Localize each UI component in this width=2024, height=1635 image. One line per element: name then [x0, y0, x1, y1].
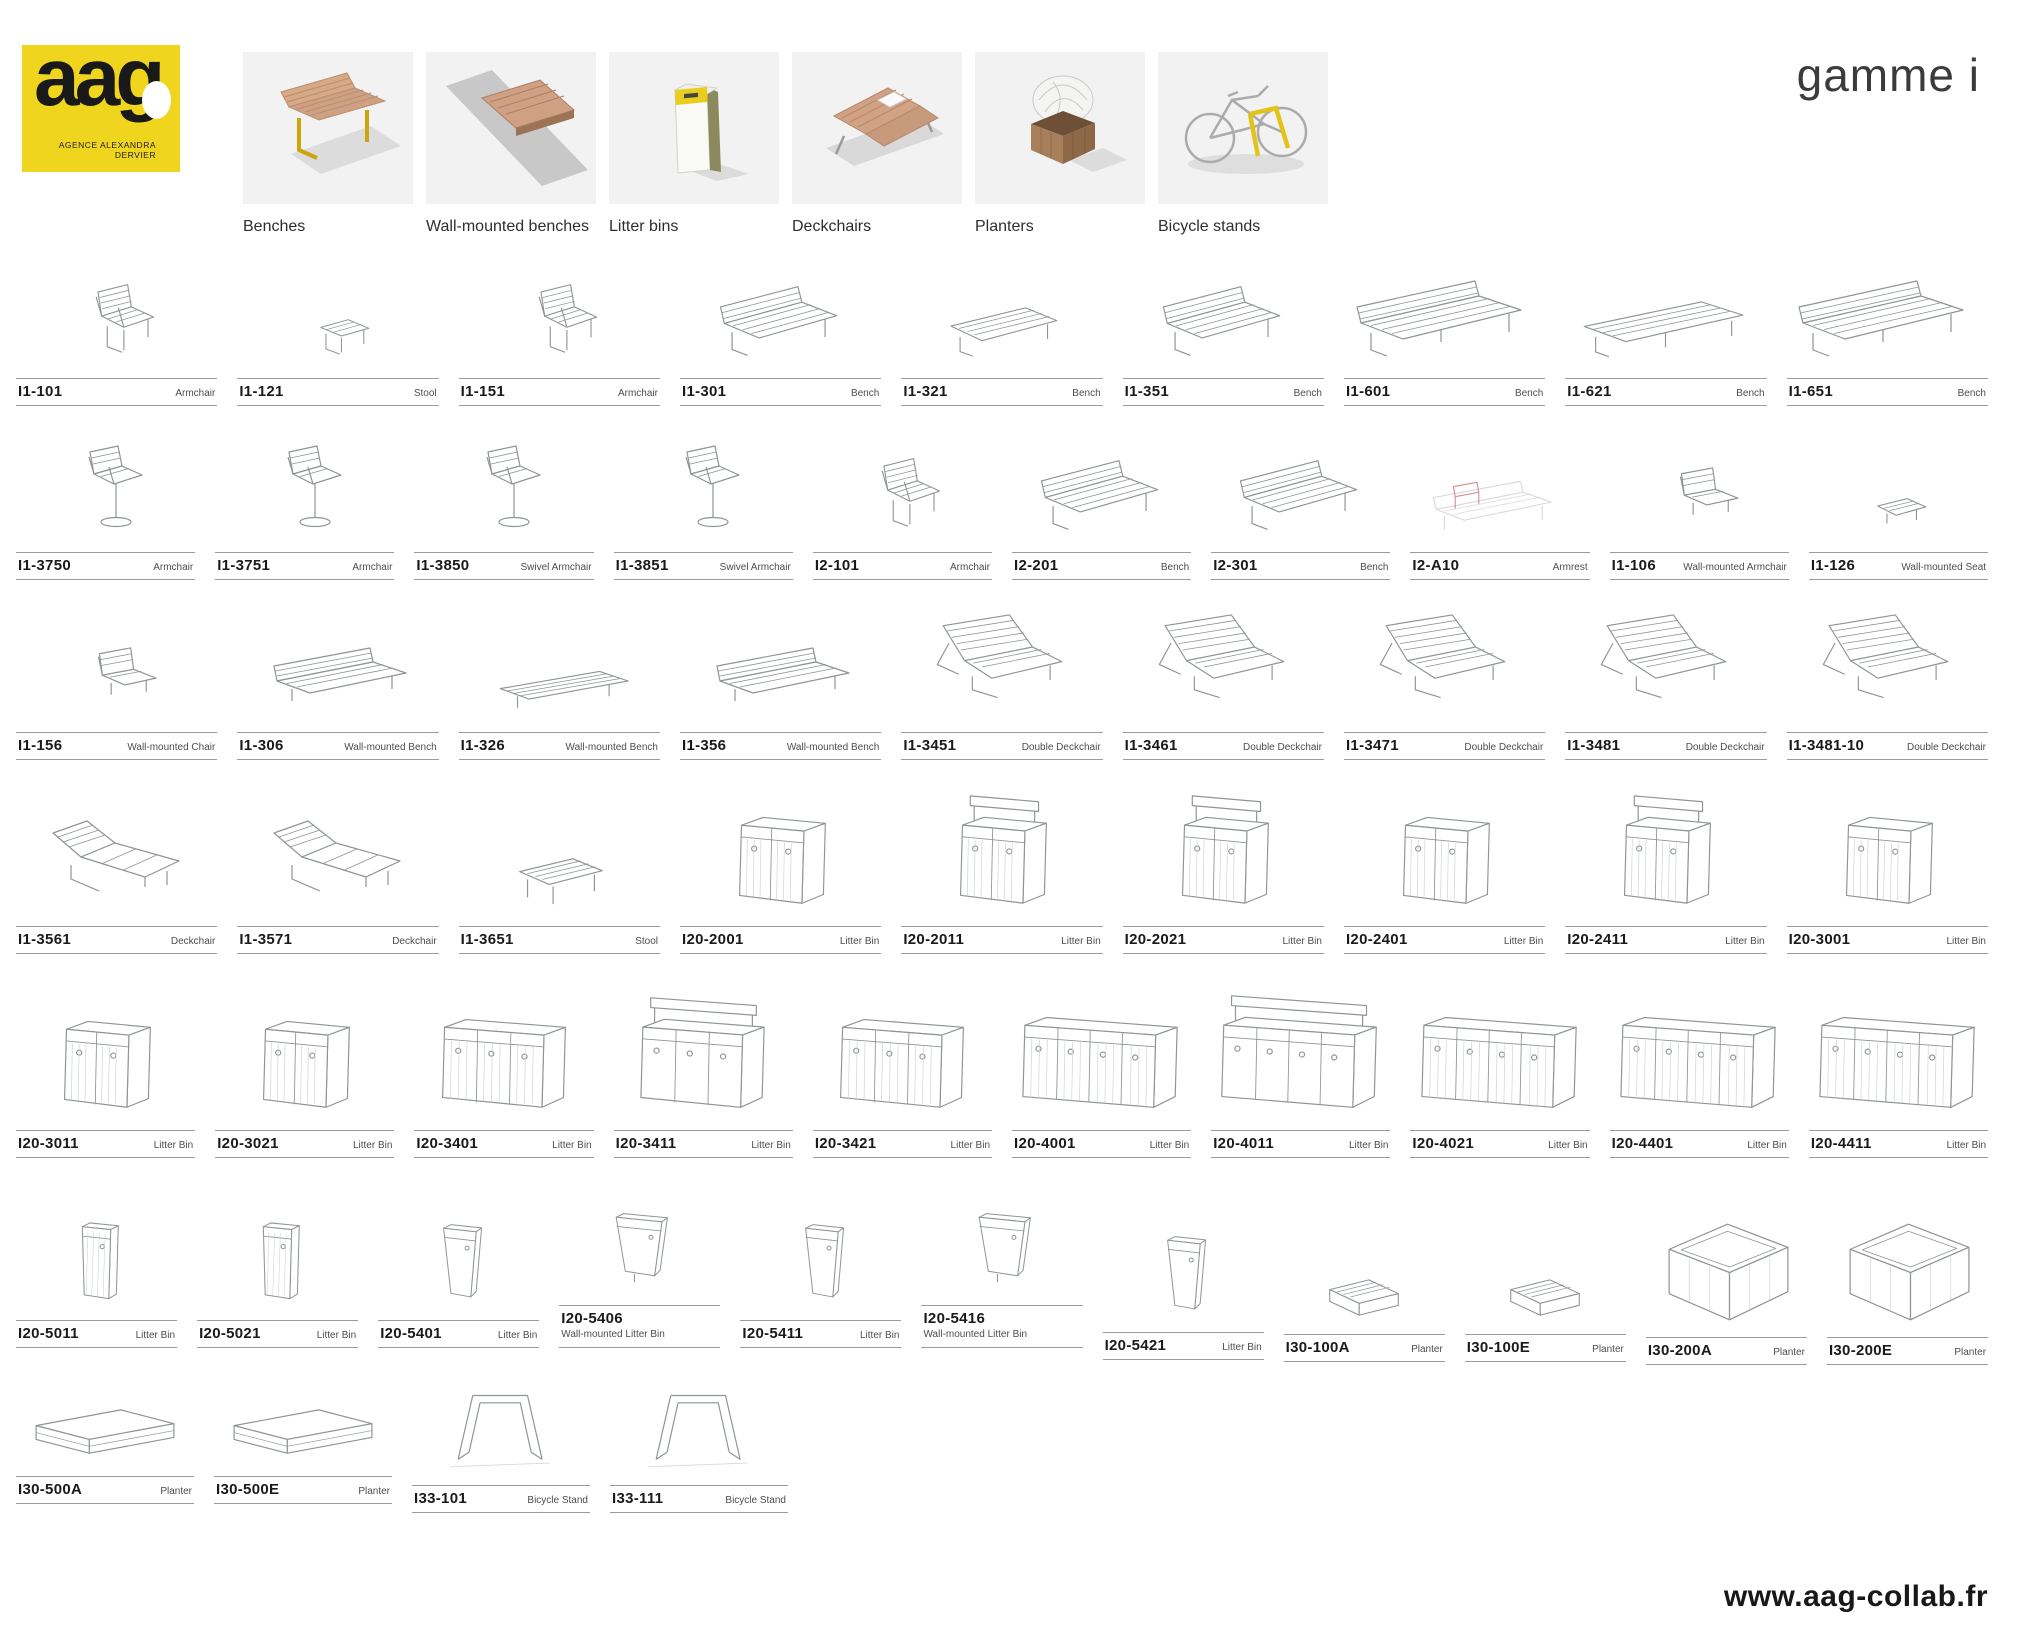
product-code: I20-4001 — [1014, 1135, 1076, 1152]
product-label: I20-2411Litter Bin — [1565, 926, 1766, 954]
product-sketch — [454, 442, 554, 547]
label-rule-bottom — [813, 579, 992, 580]
product-card: I20-3421Litter Bin — [813, 998, 1012, 1158]
product-sketch — [856, 454, 949, 547]
planter-sketch — [1651, 1211, 1802, 1327]
product-row: I1-156Wall-mounted ChairI1-306Wall-mount… — [16, 592, 2008, 760]
product-card: I1-301Bench — [680, 276, 901, 406]
label-rule-bottom — [1565, 953, 1766, 954]
product-sketch — [1829, 794, 1946, 921]
product-type: Litter Bin — [1055, 936, 1100, 947]
label-rule-bottom — [614, 579, 793, 580]
product-label: I1-621Bench — [1565, 378, 1766, 406]
litter-bin-sketch — [1386, 794, 1503, 916]
litter-bin-sketch — [1210, 988, 1391, 1120]
product-row: I1-3750ArmchairI1-3751ArmchairI1-3850Swi… — [16, 418, 2008, 580]
product-code: I1-3750 — [18, 557, 71, 574]
product-code: I2-101 — [815, 557, 859, 574]
product-card: I20-5416Wall-mounted Litter Bin — [921, 1199, 1102, 1348]
product-code: I30-500A — [18, 1481, 82, 1498]
product-code: I1-356 — [682, 737, 726, 754]
product-code: I1-156 — [18, 737, 62, 754]
product-label: I20-5011Litter Bin — [16, 1320, 177, 1348]
product-type: Litter Bin — [1741, 1140, 1786, 1151]
product-sketch — [56, 442, 156, 547]
label-rule-bottom — [921, 1347, 1082, 1348]
category-label: Deckchairs — [792, 218, 962, 236]
product-card: I1-356Wall-mounted Bench — [680, 642, 901, 760]
label-rule-bottom — [1123, 953, 1324, 954]
category-tile: Litter bins — [609, 52, 779, 236]
label-rule-bottom — [1012, 579, 1191, 580]
product-label: I20-5421Litter Bin — [1103, 1332, 1264, 1360]
product-card: I1-3651Stool — [459, 842, 680, 954]
product-code: I1-321 — [903, 383, 947, 400]
label-rule-bottom — [1103, 1359, 1264, 1360]
swivel-armchair-sketch — [653, 442, 753, 542]
litter-bin-sketch — [47, 998, 164, 1120]
label-rule-bottom — [1787, 759, 1988, 760]
litter-bin-sketch — [1607, 784, 1724, 916]
product-sketch — [1155, 1220, 1211, 1327]
product-label: I1-306Wall-mounted Bench — [237, 732, 438, 760]
product-type: Bicycle Stand — [521, 1495, 588, 1506]
label-rule-bottom — [1809, 579, 1988, 580]
product-label: I1-3850Swivel Armchair — [414, 552, 593, 580]
product-sketch — [827, 998, 978, 1125]
product-code: I1-3571 — [239, 931, 292, 948]
product-sketch — [1578, 610, 1753, 727]
product-label: I20-3001Litter Bin — [1787, 926, 1988, 954]
product-sketch — [1210, 988, 1391, 1125]
product-code: I1-151 — [461, 383, 505, 400]
product-code: I30-500E — [216, 1481, 279, 1498]
product-card: I20-4011Litter Bin — [1211, 988, 1410, 1158]
bench-sketch — [1345, 273, 1545, 368]
product-type: Litter Bin — [745, 1140, 790, 1151]
product-code: I20-5416 — [923, 1310, 985, 1327]
product-label: I20-5021Litter Bin — [197, 1320, 358, 1348]
product-card: I1-126Wall-mounted Seat — [1809, 482, 2008, 580]
product-type: Planter — [352, 1486, 390, 1497]
product-type: Armchair — [944, 562, 990, 573]
product-type: Litter Bin — [347, 1140, 392, 1151]
product-label: I20-5401Litter Bin — [378, 1320, 539, 1348]
product-label: I1-106Wall-mounted Armchair — [1610, 552, 1789, 580]
category-tiles: BenchesWall-mounted benchesLitter binsDe… — [243, 52, 1328, 236]
product-row: I20-5011Litter BinI20-5021Litter BinI20-… — [16, 1152, 2008, 1348]
product-code: I1-121 — [239, 383, 283, 400]
product-card: I30-100APlanter — [1284, 1270, 1465, 1362]
product-type: Double Deckchair — [1016, 742, 1101, 753]
product-type: Litter Bin — [1719, 936, 1764, 947]
product-sketch — [968, 1199, 1037, 1300]
product-label: I1-3451Double Deckchair — [901, 732, 1102, 760]
product-sketch — [1651, 1211, 1802, 1332]
category-label: Litter bins — [609, 218, 779, 236]
litter-bin-sketch — [1609, 998, 1790, 1120]
product-code: I1-3651 — [461, 931, 514, 948]
logo-tagline: AGENCE ALEXANDRA DERVIER — [56, 140, 156, 160]
double-deckchair-sketch — [1800, 610, 1975, 722]
product-card: I1-3561Deckchair — [16, 811, 237, 954]
product-sketch — [647, 1379, 752, 1480]
litter-bin-sketch — [1165, 784, 1282, 916]
product-label: I1-321Bench — [901, 378, 1102, 406]
product-card: I1-151Armchair — [459, 280, 680, 406]
label-rule-bottom — [1123, 405, 1324, 406]
product-type: Litter Bin — [1941, 1140, 1986, 1151]
product-label: I1-301Bench — [680, 378, 881, 406]
label-rule-bottom — [414, 579, 593, 580]
product-card: I1-3750Armchair — [16, 442, 215, 580]
label-rule-bottom — [1565, 759, 1766, 760]
wall-mounted-chair-sketch — [68, 644, 166, 722]
label-rule-bottom — [1344, 953, 1545, 954]
product-code: I20-3421 — [815, 1135, 877, 1152]
product-code: I1-106 — [1612, 557, 1656, 574]
bench-sketch — [1223, 450, 1378, 542]
product-sketch — [1571, 283, 1760, 373]
product-card: I20-2011Litter Bin — [901, 784, 1122, 954]
litter-bin-sketch — [1410, 998, 1591, 1120]
product-sketch — [793, 1208, 849, 1315]
product-code: I20-3001 — [1789, 931, 1851, 948]
product-sketch — [1318, 1270, 1411, 1329]
product-code: I30-200E — [1829, 1342, 1892, 1359]
label-rule-bottom — [16, 1347, 177, 1348]
product-label: I1-3571Deckchair — [237, 926, 438, 954]
product-code: I33-101 — [414, 1490, 467, 1507]
product-card: I2-201Bench — [1012, 450, 1211, 580]
product-type: Wall-mounted Bench — [781, 742, 879, 753]
product-card: I1-651Bench — [1787, 273, 2008, 406]
product-card: I2-101Armchair — [813, 454, 1012, 580]
website-link[interactable]: www.aag-collab.fr — [1724, 1580, 1988, 1614]
product-card: I30-500APlanter — [16, 1402, 214, 1504]
product-type: Wall-mounted Armchair — [1677, 562, 1787, 573]
product-code: I1-3481-10 — [1789, 737, 1865, 754]
product-type: Planter — [1948, 1347, 1986, 1358]
product-code: I1-3461 — [1125, 737, 1178, 754]
label-rule-bottom — [237, 953, 438, 954]
product-code: I20-5021 — [199, 1325, 261, 1342]
label-rule-bottom — [901, 405, 1102, 406]
product-card: I33-111Bicycle Stand — [610, 1379, 808, 1513]
product-code: I20-5011 — [18, 1325, 79, 1342]
product-code: I20-2401 — [1346, 931, 1408, 948]
product-card: I1-101Armchair — [16, 280, 237, 406]
product-label: I20-5411Litter Bin — [740, 1320, 901, 1348]
product-label: I2-201Bench — [1012, 552, 1191, 580]
product-type: Bench — [1288, 388, 1322, 399]
product-sketch — [1136, 610, 1311, 727]
bench-thumbnail-icon — [243, 52, 413, 204]
category-label: Benches — [243, 218, 413, 236]
product-sketch — [68, 644, 166, 727]
product-type: Double Deckchair — [1458, 742, 1543, 753]
product-card: I1-156Wall-mounted Chair — [16, 644, 237, 760]
product-type: Litter Bin — [945, 1140, 990, 1151]
litter-bin-sketch — [722, 794, 839, 916]
category-tile-image — [243, 52, 413, 204]
product-label: I30-200APlanter — [1646, 1337, 1807, 1365]
catalog-page: { "meta": { "brand_yellow": "#EFD51E", "… — [0, 0, 2024, 1635]
product-sketch — [1800, 610, 1975, 727]
product-code: I1-326 — [461, 737, 505, 754]
product-label: I1-3851Swivel Armchair — [614, 552, 793, 580]
product-code: I33-111 — [612, 1490, 663, 1507]
product-label: I1-156Wall-mounted Chair — [16, 732, 217, 760]
category-tile: Wall-mounted benches — [426, 52, 596, 236]
product-label: I1-151Armchair — [459, 378, 660, 406]
product-code: I20-3021 — [217, 1135, 279, 1152]
product-code: I20-5401 — [380, 1325, 442, 1342]
product-sketch — [1607, 784, 1724, 921]
product-sketch — [246, 998, 363, 1125]
label-rule-bottom — [16, 1503, 194, 1504]
product-row: I30-500APlanterI30-500EPlanterI33-101Bic… — [16, 1352, 808, 1504]
category-tile-image — [609, 52, 779, 204]
product-sketch — [255, 442, 355, 547]
product-code: I2-A10 — [1412, 557, 1459, 574]
product-label: I1-3651Stool — [459, 926, 660, 954]
product-type: Armchair — [612, 388, 658, 399]
product-label: I1-3461Double Deckchair — [1123, 732, 1324, 760]
product-sketch — [1011, 998, 1192, 1125]
product-sketch — [1165, 784, 1282, 921]
deckchair-sketch — [248, 811, 428, 916]
product-sketch — [701, 642, 861, 727]
product-label: I33-111Bicycle Stand — [610, 1485, 788, 1513]
product-sketch — [248, 1204, 307, 1315]
product-type: Litter Bin — [130, 1330, 175, 1341]
bench-sketch — [929, 286, 1075, 368]
category-tile-image — [792, 52, 962, 204]
product-card: I20-3401Litter Bin — [414, 998, 613, 1158]
wall-mounted-litter-bin-sketch — [968, 1199, 1037, 1295]
deckchair-thumbnail-icon — [792, 52, 962, 204]
litter-bin-sketch — [1808, 998, 1989, 1120]
product-label: I1-356Wall-mounted Bench — [680, 732, 881, 760]
product-card: I1-3751Armchair — [215, 442, 414, 580]
product-code: I1-3850 — [416, 557, 469, 574]
product-sketch — [67, 1204, 126, 1315]
product-label: I20-2001Litter Bin — [680, 926, 881, 954]
product-code: I1-601 — [1346, 383, 1390, 400]
double-deckchair-sketch — [914, 610, 1089, 722]
product-card: I20-3001Litter Bin — [1787, 794, 2008, 954]
label-rule-bottom — [901, 953, 1102, 954]
product-sketch — [653, 442, 753, 547]
litter-bin-thumbnail-icon — [609, 52, 779, 204]
product-type: Bench — [1509, 388, 1543, 399]
product-sketch — [1808, 998, 1989, 1125]
label-rule-bottom — [197, 1347, 358, 1348]
product-type: Armrest — [1547, 562, 1588, 573]
product-card: I20-4001Litter Bin — [1012, 998, 1211, 1158]
product-code: I1-3481 — [1567, 737, 1620, 754]
armchair-sketch — [70, 280, 163, 368]
label-rule-bottom — [237, 405, 438, 406]
label-rule-bottom — [16, 405, 217, 406]
logo-dot-icon — [142, 81, 171, 119]
product-card: I1-3481Double Deckchair — [1565, 610, 1786, 760]
product-type: Litter Bin — [1144, 1140, 1189, 1151]
planter-sketch — [26, 1402, 184, 1466]
product-type: Planter — [1767, 1347, 1805, 1358]
product-sketch — [722, 794, 839, 921]
product-type: Litter Bin — [1498, 936, 1543, 947]
product-code: I20-2021 — [1125, 931, 1187, 948]
litter-bin-sketch — [1011, 998, 1192, 1120]
product-type: Bench — [845, 388, 879, 399]
product-card: I20-3021Litter Bin — [215, 998, 414, 1158]
litter-bin-sketch — [429, 998, 580, 1120]
product-card: I1-106Wall-mounted Armchair — [1610, 464, 1809, 580]
product-type: Bench — [1730, 388, 1764, 399]
label-rule-bottom — [16, 953, 217, 954]
product-code: I1-651 — [1789, 383, 1833, 400]
label-rule-bottom — [1610, 579, 1789, 580]
product-sketch — [1609, 998, 1790, 1125]
armrest-sketch — [1419, 474, 1582, 542]
product-label: I1-351Bench — [1123, 378, 1324, 406]
product-row: I1-3561DeckchairI1-3571DeckchairI1-3651S… — [16, 762, 2008, 954]
armchair-sketch — [56, 442, 156, 542]
product-card: I1-121Stool — [237, 286, 458, 406]
product-card: I20-5421Litter Bin — [1103, 1220, 1284, 1360]
product-type: Litter Bin — [546, 1140, 591, 1151]
product-card: I20-2021Litter Bin — [1123, 784, 1344, 954]
product-label: I30-500APlanter — [16, 1476, 194, 1504]
product-type: Stool — [629, 936, 658, 947]
product-label: I1-601Bench — [1344, 378, 1545, 406]
product-sketch — [258, 642, 418, 727]
swivel-armchair-sketch — [454, 442, 554, 542]
wall-bench-thumbnail-icon — [426, 52, 596, 204]
product-card: I1-351Bench — [1123, 276, 1344, 406]
product-code: I20-5406 — [561, 1310, 623, 1327]
stool-sketch — [295, 286, 381, 368]
product-sketch — [1386, 794, 1503, 921]
category-tile-image — [1158, 52, 1328, 204]
product-card: I20-5011Litter Bin — [16, 1204, 197, 1348]
label-rule-bottom — [1787, 953, 1988, 954]
product-label: I30-100APlanter — [1284, 1334, 1445, 1362]
wall-mounted-armchair-sketch — [1650, 464, 1748, 542]
bench-sketch — [1024, 450, 1179, 542]
product-card: I20-4411Litter Bin — [1809, 998, 2008, 1158]
label-rule-bottom — [1284, 1361, 1445, 1362]
product-card: I20-4021Litter Bin — [1410, 998, 1609, 1158]
product-type: Litter Bin — [1216, 1342, 1261, 1353]
product-type: Armchair — [346, 562, 392, 573]
logo-tagline-line1: AGENCE ALEXANDRA — [56, 140, 156, 150]
product-card: I1-3851Swivel Armchair — [614, 442, 813, 580]
product-type: Wall-mounted Bench — [560, 742, 658, 753]
product-label: I30-200EPlanter — [1827, 1337, 1988, 1365]
label-rule-bottom — [559, 1347, 720, 1348]
product-code: I20-2011 — [903, 931, 964, 948]
product-card: I2-301Bench — [1211, 450, 1410, 580]
armchair-sketch — [255, 442, 355, 542]
label-rule-bottom — [680, 953, 881, 954]
armchair-sketch — [513, 280, 606, 368]
label-rule-bottom — [459, 953, 660, 954]
product-label: I30-500EPlanter — [214, 1476, 392, 1504]
label-rule-bottom — [1465, 1361, 1626, 1362]
product-type: Planter — [1586, 1344, 1624, 1355]
category-label: Bicycle stands — [1158, 218, 1328, 236]
product-card: I20-5021Litter Bin — [197, 1204, 378, 1348]
product-card: I20-5411Litter Bin — [740, 1208, 921, 1348]
product-label: I2-A10Armrest — [1410, 552, 1589, 580]
double-deckchair-sketch — [1578, 610, 1753, 722]
product-type: Bench — [1952, 388, 1986, 399]
product-code: I1-3451 — [903, 737, 956, 754]
product-sketch — [483, 660, 636, 727]
wall-mounted-bench-sketch — [258, 642, 418, 722]
label-rule-bottom — [1211, 579, 1390, 580]
product-sketch — [500, 842, 618, 921]
product-code: I20-5421 — [1105, 1337, 1167, 1354]
product-sketch — [1787, 273, 1987, 373]
product-sketch — [929, 286, 1075, 373]
label-rule-bottom — [16, 759, 217, 760]
product-sketch — [449, 1379, 554, 1480]
double-deckchair-sketch — [1357, 610, 1532, 722]
product-type: Wall-mounted Chair — [121, 742, 215, 753]
label-rule-bottom — [459, 405, 660, 406]
product-label: I1-3471Double Deckchair — [1344, 732, 1545, 760]
label-rule-bottom — [1410, 579, 1589, 580]
product-type: Armchair — [169, 388, 215, 399]
product-type: Double Deckchair — [1237, 742, 1322, 753]
product-sketch — [295, 286, 381, 373]
product-sketch — [1861, 482, 1935, 547]
product-sketch — [1223, 450, 1378, 547]
product-type: Swivel Armchair — [514, 562, 591, 573]
aag-logo: aag AGENCE ALEXANDRA DERVIER — [22, 45, 180, 172]
label-rule-bottom — [1344, 405, 1545, 406]
product-sketch — [429, 998, 580, 1125]
product-type: Wall-mounted Bench — [338, 742, 436, 753]
product-code: I1-126 — [1811, 557, 1855, 574]
label-rule-bottom — [214, 1503, 392, 1504]
wall-mounted-litter-bin-sketch — [605, 1199, 674, 1295]
product-card: I1-3850Swivel Armchair — [414, 442, 613, 580]
product-card: I30-100EPlanter — [1465, 1270, 1646, 1362]
product-type: Litter Bin — [311, 1330, 356, 1341]
planter-sketch — [224, 1402, 382, 1466]
planter-thumbnail-icon — [975, 52, 1145, 204]
product-card: I1-3471Double Deckchair — [1344, 610, 1565, 760]
product-type: Double Deckchair — [1680, 742, 1765, 753]
product-card: I20-4401Litter Bin — [1610, 998, 1809, 1158]
label-rule-bottom — [680, 405, 881, 406]
logo-wordmark: aag — [34, 31, 160, 125]
product-label: I2-101Armchair — [813, 552, 992, 580]
product-card: I1-621Bench — [1565, 283, 1786, 406]
product-type: Bicycle Stand — [719, 1495, 786, 1506]
litter-bin-sketch — [793, 1208, 849, 1310]
category-tile: Deckchairs — [792, 52, 962, 236]
product-type: Swivel Armchair — [714, 562, 791, 573]
product-sketch — [1650, 464, 1748, 547]
product-card: I30-200APlanter — [1646, 1211, 1827, 1365]
product-label: I20-5416Wall-mounted Litter Bin — [921, 1305, 1082, 1348]
